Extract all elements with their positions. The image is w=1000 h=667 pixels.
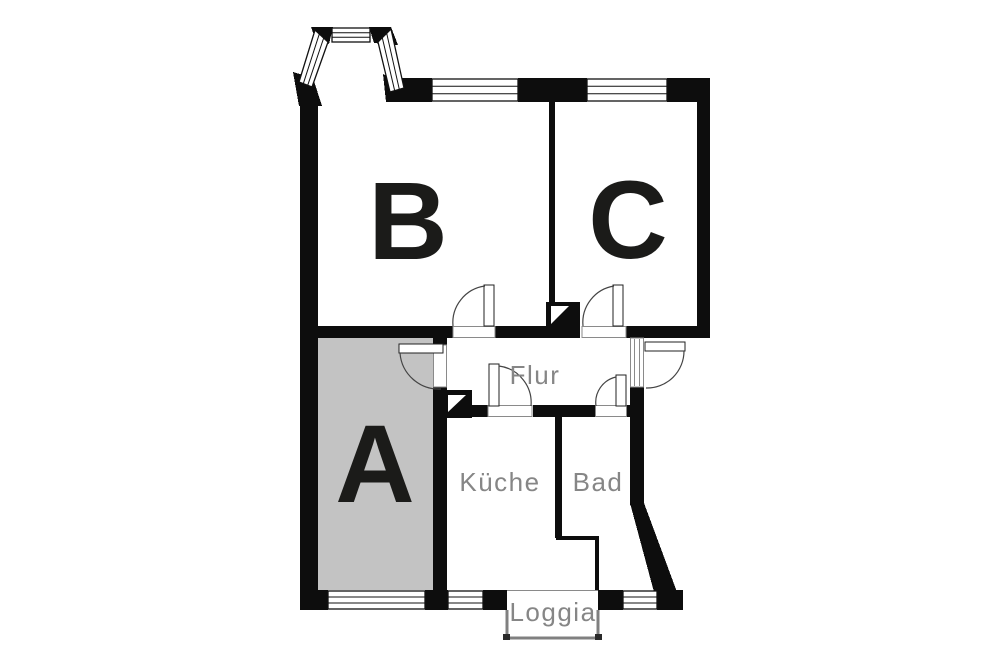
door-leaf-entrance bbox=[645, 342, 685, 351]
wall-entry-side bbox=[630, 387, 644, 505]
door-leaf-room-c bbox=[613, 285, 623, 326]
window-bottom-kueche bbox=[448, 591, 483, 609]
window-bottom-a bbox=[328, 591, 425, 609]
room-label-flur: Flur bbox=[510, 360, 561, 390]
loggia-corner-dot bbox=[503, 634, 510, 640]
bay-window-top bbox=[332, 28, 370, 42]
wall-top-seg2 bbox=[518, 78, 587, 102]
opening-room-c bbox=[582, 327, 626, 338]
wall-kueche-bad bbox=[555, 417, 562, 538]
wall-divider-seg2 bbox=[495, 326, 546, 338]
door-leaf-room-a bbox=[399, 344, 443, 353]
wall-b-c bbox=[549, 102, 555, 305]
wall-bottom-seg4 bbox=[598, 590, 623, 610]
floor-plan-svg: A B C Flur Küche Bad Loggia bbox=[0, 0, 1000, 667]
window-bottom-right bbox=[623, 591, 657, 609]
room-label-a: A bbox=[335, 403, 414, 526]
door-leaf-bad bbox=[616, 375, 626, 406]
room-label-kueche: Küche bbox=[459, 467, 540, 497]
room-label-c: C bbox=[588, 159, 667, 282]
window-top-1 bbox=[432, 79, 518, 101]
window-top-2 bbox=[587, 79, 667, 101]
wall-flur-bottom-seg2 bbox=[533, 405, 595, 417]
room-label-b: B bbox=[368, 160, 447, 283]
wall-divider-seg1 bbox=[300, 326, 453, 338]
wall-bottom-seg5 bbox=[657, 590, 683, 610]
door-leaf-room-b bbox=[484, 285, 494, 326]
room-label-bad: Bad bbox=[573, 467, 624, 497]
wall-divider-seg3 bbox=[626, 326, 710, 338]
wall-step-horizontal bbox=[556, 536, 599, 540]
wall-bottom-seg2 bbox=[425, 590, 448, 610]
room-label-loggia: Loggia bbox=[509, 597, 596, 627]
floor-plan-page: A B C Flur Küche Bad Loggia bbox=[0, 0, 1000, 667]
loggia-corner-dot bbox=[595, 634, 602, 640]
opening-kueche bbox=[488, 406, 532, 417]
wall-bottom-seg1 bbox=[300, 590, 328, 610]
wall-left bbox=[300, 96, 318, 610]
door-leaf-kueche bbox=[489, 364, 499, 406]
wall-bottom-seg3 bbox=[483, 590, 507, 610]
wall-right bbox=[697, 78, 710, 338]
opening-room-b bbox=[453, 327, 495, 338]
opening-entrance bbox=[631, 338, 644, 387]
wall-step-vertical bbox=[595, 538, 599, 591]
opening-bad bbox=[596, 406, 627, 417]
